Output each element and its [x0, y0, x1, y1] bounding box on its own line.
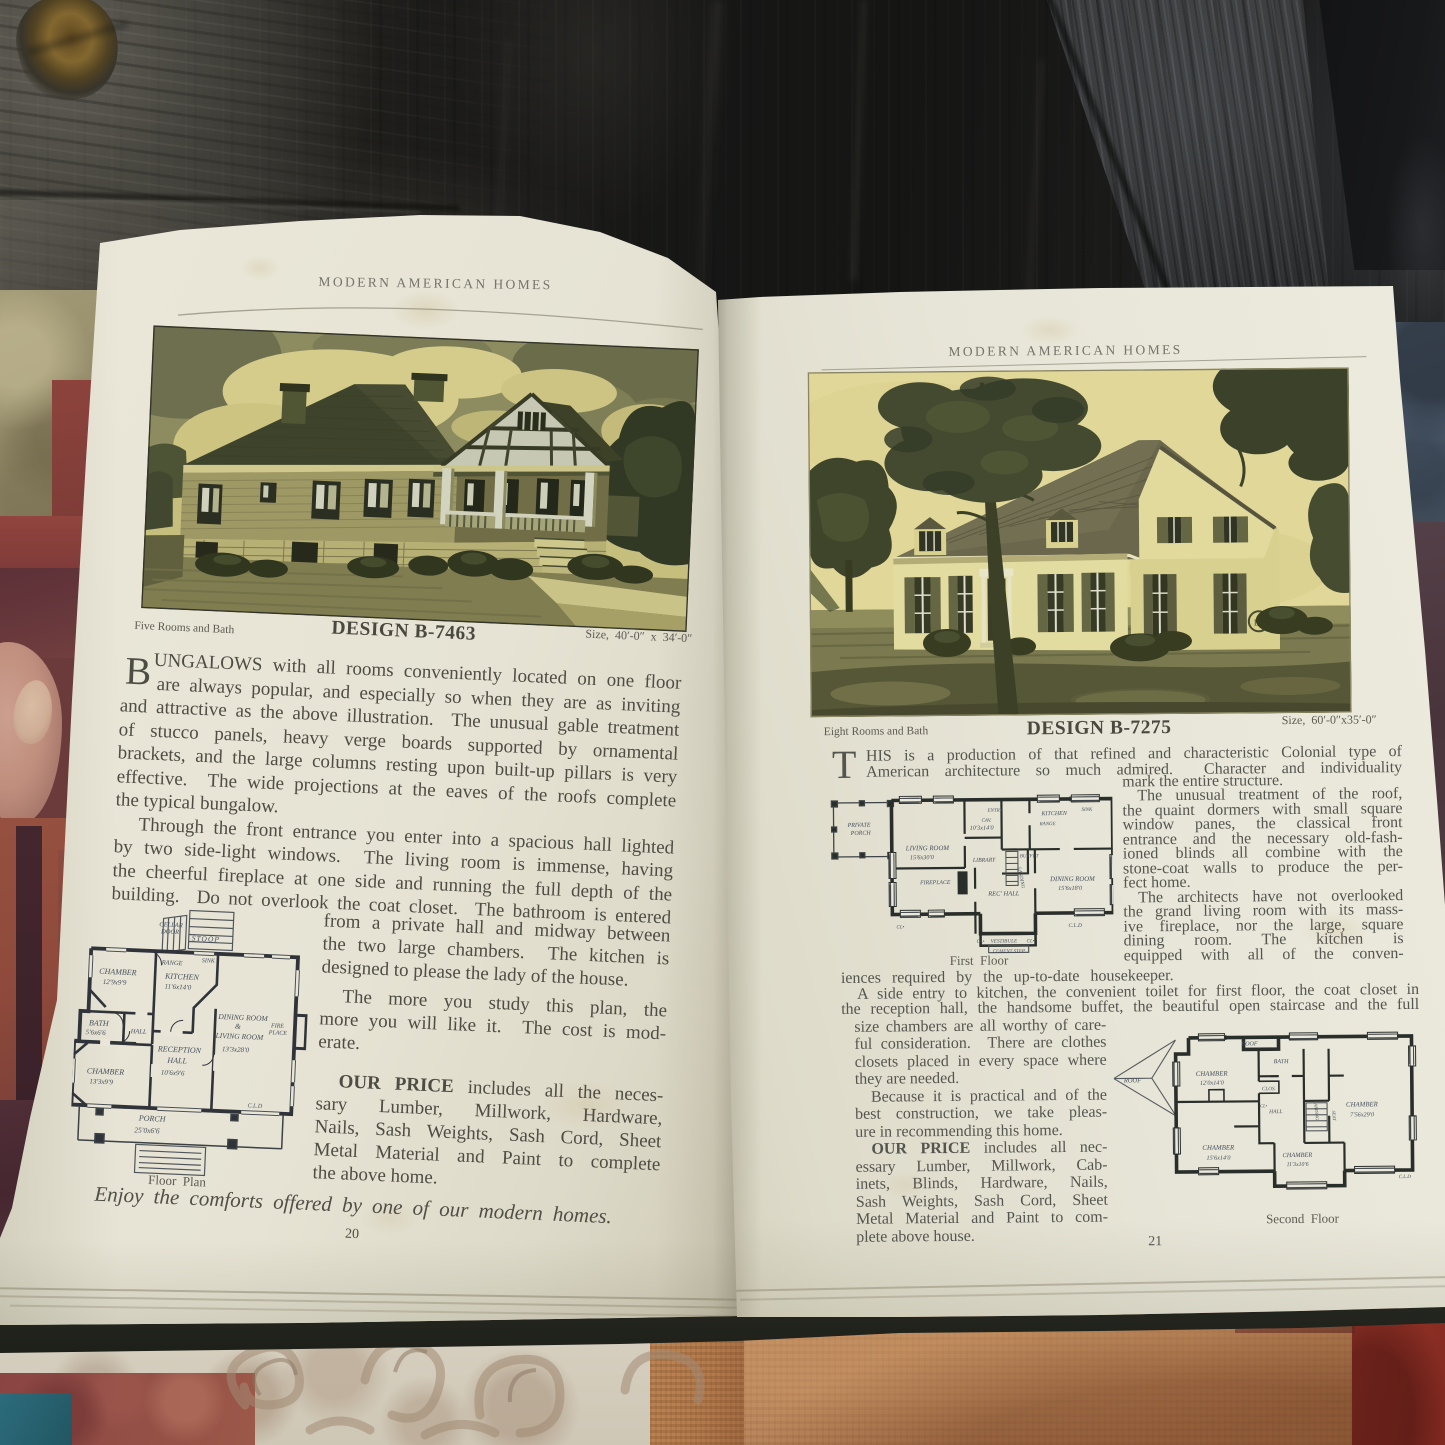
svg-text:10'3x14'0: 10'3x14'0 — [970, 825, 995, 832]
svg-text:FIREPLACE: FIREPLACE — [919, 880, 951, 886]
svg-text:HALL: HALL — [1268, 1109, 1283, 1115]
svg-text:CHAMBER: CHAMBER — [99, 967, 137, 978]
svg-text:SEAT: SEAT — [1331, 1110, 1337, 1121]
svg-text:SINK: SINK — [1081, 808, 1093, 813]
svg-text:HALL: HALL — [166, 1056, 187, 1066]
svg-text:12'9x9'9: 12'9x9'9 — [103, 978, 127, 987]
svg-text:15'6x18'0: 15'6x18'0 — [1058, 885, 1083, 892]
svg-text:SINK: SINK — [202, 958, 216, 965]
svg-text:CAV.: CAV. — [982, 819, 992, 824]
svg-text:CL•: CL• — [1027, 939, 1035, 944]
svg-text:REC′ HALL: REC′ HALL — [987, 890, 1020, 897]
svg-text:ENTRY: ENTRY — [986, 809, 1003, 814]
svg-text:ROOF: ROOF — [1240, 1041, 1257, 1047]
svg-text:7'56x29'0: 7'56x29'0 — [1350, 1111, 1375, 1118]
svg-text:CHAMBER: CHAMBER — [1196, 1071, 1229, 1078]
svg-text:PORCH: PORCH — [138, 1113, 167, 1123]
svg-text:PORCH: PORCH — [850, 831, 872, 837]
svg-text:RANGE: RANGE — [161, 959, 183, 967]
svg-text:FIRE: FIRE — [270, 1023, 285, 1030]
svg-text:10'6x9'6: 10'6x9'6 — [161, 1068, 185, 1077]
svg-text:C.L.D: C.L.D — [1068, 923, 1082, 929]
svg-text:CL•: CL• — [977, 940, 985, 945]
svg-text:PLACE: PLACE — [268, 1030, 288, 1037]
svg-text:13'3x9'9: 13'3x9'9 — [89, 1077, 113, 1086]
svg-text:BUFFET: BUFFET — [1020, 854, 1040, 859]
svg-text:15'6x30'0: 15'6x30'0 — [910, 854, 935, 861]
svg-text:11'6x14'0: 11'6x14'0 — [164, 983, 191, 992]
svg-text:CL•: CL• — [1260, 1103, 1268, 1108]
svg-text:RANGE: RANGE — [1039, 822, 1056, 827]
svg-text:5'6x6'6: 5'6x6'6 — [85, 1028, 106, 1037]
svg-text:ROOF: ROOF — [1123, 1077, 1142, 1084]
svg-text:CHAMBER: CHAMBER — [1346, 1101, 1379, 1108]
svg-text:LIVING ROOM: LIVING ROOM — [214, 1031, 264, 1042]
svg-text:RECEPTION: RECEPTION — [157, 1044, 202, 1055]
svg-text:25'0x6'6: 25'0x6'6 — [134, 1125, 160, 1135]
svg-text:CHAMBER: CHAMBER — [1202, 1145, 1235, 1152]
svg-text:12'0x14'0: 12'0x14'0 — [1200, 1080, 1225, 1087]
svg-text:VESTIBULE: VESTIBULE — [991, 938, 1018, 944]
svg-text:BATH: BATH — [89, 1018, 110, 1028]
svg-text:PRIVATE: PRIVATE — [847, 823, 871, 829]
svg-text:DINING ROOM: DINING ROOM — [217, 1012, 268, 1023]
svg-text:CL•: CL• — [896, 925, 904, 930]
svg-text:C.L.D: C.L.D — [1399, 1175, 1412, 1180]
svg-text:CLOS.: CLOS. — [1262, 1086, 1276, 1092]
svg-text:DOOR: DOOR — [160, 928, 179, 936]
svg-text:LANDING: LANDING — [1313, 1099, 1320, 1121]
svg-text:DINING ROOM: DINING ROOM — [1049, 876, 1095, 883]
svg-text:C.L.D: C.L.D — [247, 1103, 263, 1110]
svg-text:&: & — [235, 1022, 241, 1031]
svg-text:HALL: HALL — [129, 1028, 147, 1036]
svg-text:CHAMBER: CHAMBER — [87, 1066, 125, 1077]
svg-text:CHAMBER: CHAMBER — [1282, 1152, 1312, 1159]
svg-text:BATH: BATH — [1274, 1059, 1289, 1065]
svg-text:KITCHEN: KITCHEN — [1040, 811, 1067, 817]
svg-text:LIBRARY: LIBRARY — [972, 858, 996, 864]
svg-text:13'3x28'0: 13'3x28'0 — [222, 1045, 250, 1054]
svg-text:LIVING ROOM: LIVING ROOM — [905, 845, 950, 852]
svg-text:15'6x14'0: 15'6x14'0 — [1206, 1155, 1231, 1162]
svg-text:11'3x10'6: 11'3x10'6 — [1287, 1162, 1309, 1168]
svg-text:KITCHEN: KITCHEN — [164, 971, 200, 982]
svg-text:STOOP: STOOP — [192, 934, 221, 944]
